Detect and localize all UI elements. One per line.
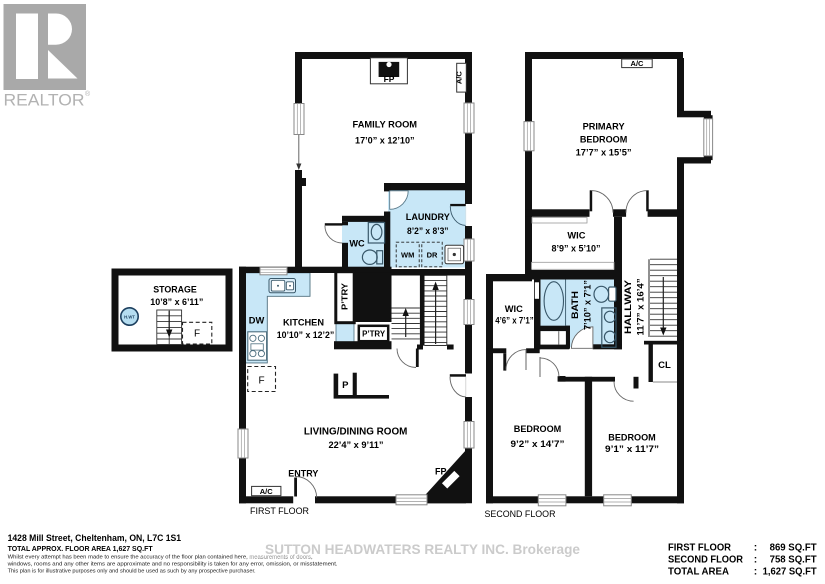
svg-text:A/C: A/C: [260, 487, 274, 496]
svg-text:FP: FP: [435, 467, 447, 477]
svg-text:windows, rooms and any other i: windows, rooms and any other items are a…: [7, 562, 338, 568]
svg-text:KITCHEN: KITCHEN: [283, 317, 324, 327]
svg-text:DW: DW: [249, 316, 265, 326]
svg-text:HALLWAY: HALLWAY: [623, 279, 634, 334]
svg-text:SUTTON HEADWATERS REALTY INC.: SUTTON HEADWATERS REALTY INC. Brokerage: [265, 541, 580, 557]
svg-text:STORAGE: STORAGE: [153, 285, 197, 295]
svg-text:BEDROOM: BEDROOM: [514, 424, 562, 434]
svg-text:DR: DR: [427, 251, 438, 260]
svg-text:BATH: BATH: [570, 291, 580, 319]
svg-text:A/C: A/C: [631, 59, 645, 68]
svg-text:LAUNDRY: LAUNDRY: [406, 212, 450, 222]
svg-text:1428 Mill Street, Cheltenham,: 1428 Mill Street, Cheltenham, ON, L7C 1S…: [8, 533, 182, 543]
svg-text:®: ®: [85, 90, 91, 98]
svg-text:10’10” x 12’2”: 10’10” x 12’2”: [277, 330, 335, 340]
svg-text:A/C: A/C: [455, 71, 464, 85]
svg-text:SECOND FLOOR: SECOND FLOOR: [485, 509, 556, 519]
svg-text:BEDROOM: BEDROOM: [608, 432, 656, 442]
svg-text::: :: [754, 554, 757, 565]
svg-text:WM: WM: [401, 251, 414, 260]
svg-text:P’TRY: P’TRY: [362, 329, 386, 338]
svg-text:P’TRY: P’TRY: [341, 282, 350, 310]
svg-text:FP: FP: [384, 74, 395, 84]
svg-text:CL: CL: [658, 360, 671, 371]
svg-text:This plan is for illustrative: This plan is for illustrative purposes o…: [8, 569, 256, 575]
svg-text:ENTRY: ENTRY: [288, 468, 318, 478]
svg-text::: :: [754, 567, 757, 578]
svg-text:1,627 SQ.FT: 1,627 SQ.FT: [763, 567, 818, 578]
svg-text:BEDROOM: BEDROOM: [580, 135, 628, 145]
svg-text:4’6” x 7’1”: 4’6” x 7’1”: [495, 316, 534, 326]
svg-text:TOTAL APPROX. FLOOR AREA 1,627: TOTAL APPROX. FLOOR AREA 1,627 SQ.FT: [8, 546, 154, 553]
svg-text:10’8” x 6’11”: 10’8” x 6’11”: [150, 297, 203, 307]
svg-text:SECOND FLOOR: SECOND FLOOR: [668, 554, 743, 565]
svg-text::: :: [754, 543, 757, 554]
svg-text:F: F: [258, 376, 264, 387]
svg-text:FIRST FLOOR: FIRST FLOOR: [668, 543, 731, 554]
svg-text:WC: WC: [349, 239, 365, 249]
svg-text:7’10” x 7’1”: 7’10” x 7’1”: [583, 280, 593, 330]
svg-text:22’4” x 9’11”: 22’4” x 9’11”: [329, 440, 384, 450]
svg-text:H.WT: H.WT: [124, 314, 135, 319]
svg-text:WIC: WIC: [505, 304, 523, 314]
svg-text:PRIMARY: PRIMARY: [583, 122, 625, 132]
svg-text:8’2” x 8’3”: 8’2” x 8’3”: [407, 226, 449, 236]
svg-text:869 SQ.FT: 869 SQ.FT: [770, 543, 818, 554]
svg-text:F: F: [194, 329, 200, 340]
svg-text:WIC: WIC: [567, 231, 585, 241]
svg-text:11’7” x 16’4”: 11’7” x 16’4”: [636, 279, 646, 336]
svg-text:REALTOR: REALTOR: [4, 91, 85, 110]
svg-text:LIVING/DINING ROOM: LIVING/DINING ROOM: [304, 426, 408, 437]
svg-text:17’7” x 15’5”: 17’7” x 15’5”: [576, 148, 632, 158]
svg-text:758 SQ.FT: 758 SQ.FT: [770, 554, 818, 565]
svg-text:TOTAL AREA: TOTAL AREA: [668, 567, 729, 578]
svg-text:9’1” x 11’7”: 9’1” x 11’7”: [605, 444, 659, 454]
svg-text:P: P: [342, 380, 349, 391]
svg-text:FAMILY ROOM: FAMILY ROOM: [353, 119, 418, 129]
svg-text:8’9” x 5’10”: 8’9” x 5’10”: [552, 244, 601, 254]
svg-text:17’0” x 12’10”: 17’0” x 12’10”: [355, 135, 415, 145]
svg-text:9’2” x 14’7”: 9’2” x 14’7”: [511, 439, 565, 449]
svg-text:FIRST FLOOR: FIRST FLOOR: [250, 506, 309, 516]
